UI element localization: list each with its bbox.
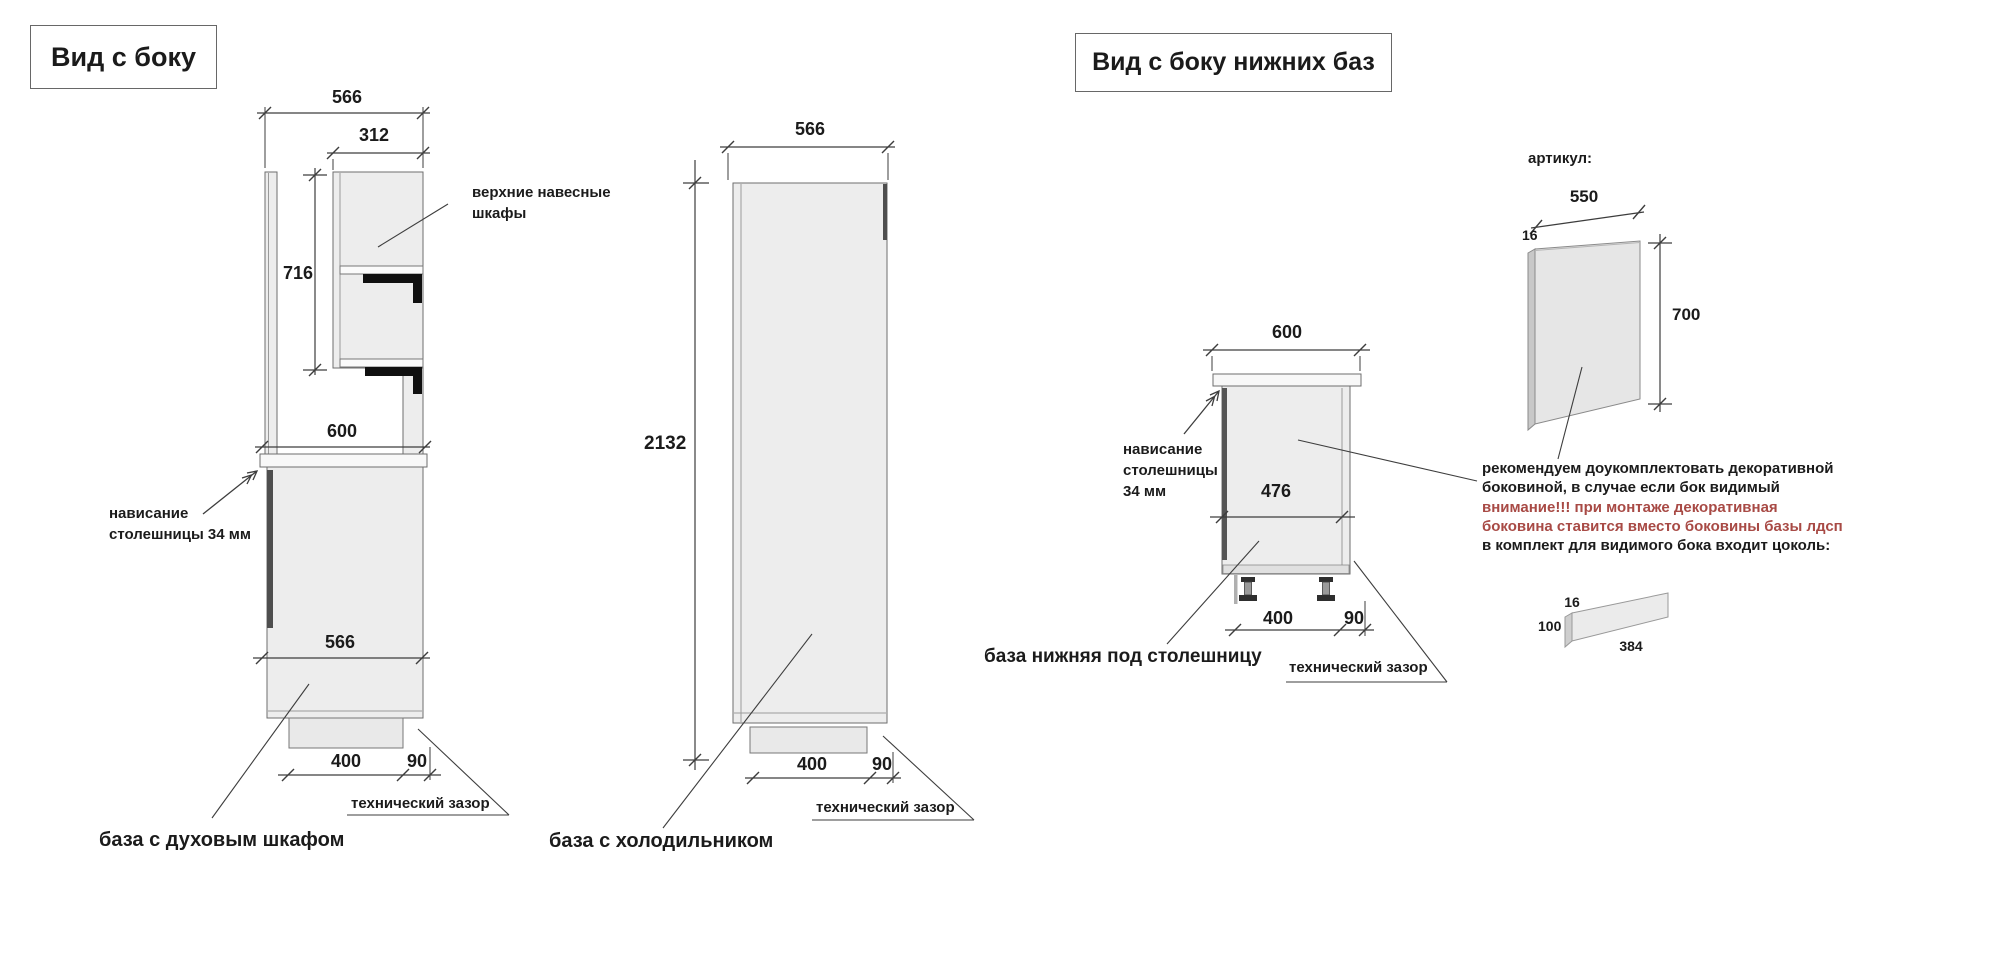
caption-fridge-base: база с холодильником [549,830,773,853]
tall-side-panel [265,172,277,455]
overhang-arrow-right [1184,391,1219,434]
plinth-edge [1565,613,1572,647]
base-cabinet-box [267,467,423,718]
dim-tech-gap: 90 [1344,608,1364,629]
dim-upper-height: 716 [283,263,313,284]
dim-body-depth: 476 [1261,481,1291,502]
oven-unit-drawing [260,172,427,748]
label-tech-gap: технический зазор [351,795,490,812]
note-line: в комплект для видимого бока входит цоко… [1482,536,1843,555]
shelf [340,359,423,367]
dimension-lines [253,107,1672,784]
right-view-title-box: Вид с боку нижних баз [1075,33,1392,92]
note-line: рекомендуем доукомплектовать декоративно… [1482,459,1843,478]
door-gap-strip [883,184,887,240]
dim-base-depth: 566 [325,632,355,653]
dim-panel-thickness: 16 [1522,227,1538,243]
shelf-bracket [413,274,422,303]
decor-panel [1535,241,1640,424]
plinth [289,718,403,748]
label-wall-cabinets: шкафы [472,205,526,222]
dim-top-depth: 566 [795,119,825,140]
plinth [750,727,867,753]
leader-oven-base [212,684,309,818]
label-article: артикул: [1528,150,1592,167]
tall-cabinet-box [733,183,887,723]
base-cabinet-box [1222,386,1350,574]
label-tech-gap: технический зазор [1289,659,1428,676]
label-overhang: нависание [109,505,188,522]
fridge-unit-drawing [733,183,887,753]
kitchen-elevation-drawing: Вид с боку Вид с боку нижних баз 566 312… [0,0,2000,965]
note-warning-line: боковина ставится вместо боковины базы л… [1482,517,1843,536]
left-view-title: Вид с боку [51,42,196,73]
label-wall-cabinets: верхние навесные [472,184,611,201]
dim-panel-width: 550 [1570,187,1598,207]
overhang-arrow-left [203,471,257,514]
side-edge-strip [1222,388,1227,560]
caption-oven-base: база с духовым шкафом [99,829,344,852]
bottom-panel [1223,565,1349,574]
dim-height: 2132 [644,433,686,455]
adjustable-foot [1239,577,1257,601]
dim-plinth-thickness: 16 [1564,594,1580,610]
plinth-board-drawing [1565,593,1668,647]
overhang-gap-strip [267,470,273,628]
left-view-title-box: Вид с боку [30,25,217,89]
dim-plinth-inset: 400 [331,751,361,772]
dim-plinth-inset: 400 [797,754,827,775]
dim-tech-gap: 90 [872,754,892,775]
label-overhang: столешницы [1123,462,1218,479]
shelf-bracket [413,367,422,394]
dim-upper-depth: 312 [359,125,389,146]
caption-lower-base: база нижняя под столешницу [984,646,1262,668]
label-overhang: 34 мм [1123,483,1166,500]
dim-tech-gap: 90 [407,751,427,772]
shelf [340,266,423,274]
right-view-title: Вид с боку нижних баз [1092,48,1375,77]
plinth-board [1572,593,1668,641]
label-tech-gap: технический зазор [816,799,955,816]
label-overhang: столешницы 34 мм [109,526,251,543]
adjustable-foot [1317,577,1335,601]
countertop [1213,374,1361,386]
countertop [260,454,427,467]
dim-top-depth: 566 [332,87,362,108]
label-overhang: нависание [1123,441,1202,458]
dim-plinth-inset: 400 [1263,608,1293,629]
decor-panel-drawing [1528,241,1640,430]
dim-plinth-length: 384 [1619,638,1642,654]
note-warning-line: внимание!!! при монтаже декоративная [1482,498,1843,517]
dim-panel-height: 700 [1672,305,1700,325]
note-block: рекомендуем доукомплектовать декоративно… [1482,459,1843,555]
dim-plinth-height: 100 [1538,618,1561,634]
front-strip [1234,575,1238,604]
dim-counter-depth: 600 [327,421,357,442]
panel-edge [1528,249,1535,430]
note-line: боковиной, в случае если бок видимый [1482,478,1843,497]
dim-top-width: 600 [1272,322,1302,343]
